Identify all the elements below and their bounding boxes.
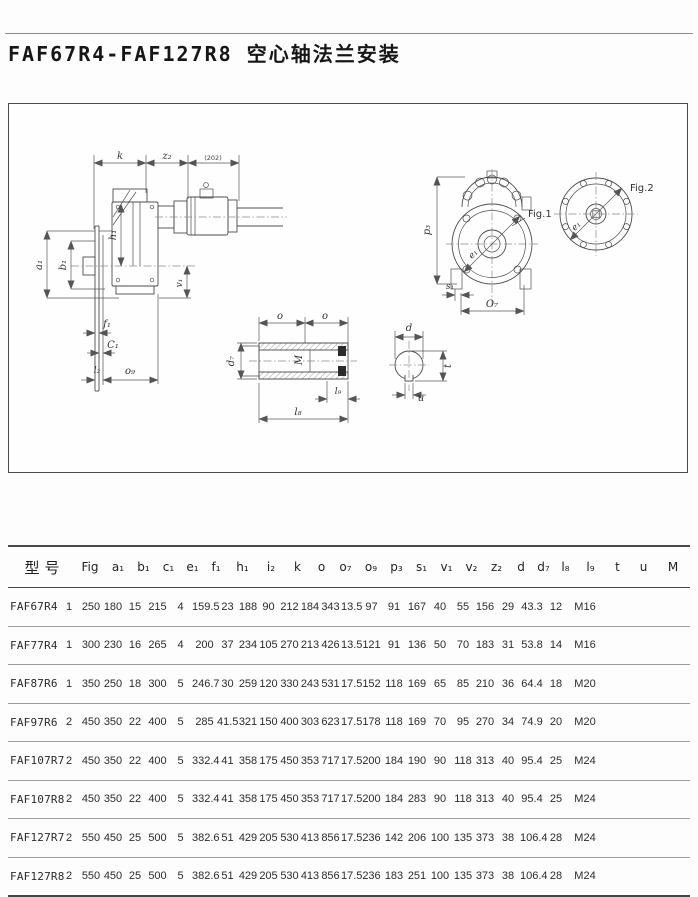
- column-header-fig: Fig: [75, 560, 105, 574]
- column-header-model: 型号: [8, 557, 75, 578]
- column-header-dim: c₁: [156, 560, 181, 574]
- value-cell: 13.5: [341, 639, 361, 651]
- dim-label-d: d: [406, 323, 412, 334]
- value-cell: M20: [568, 678, 602, 690]
- column-header-dim: v₂: [459, 560, 484, 574]
- value-cell: 152: [361, 678, 382, 690]
- value-cell: 500: [146, 832, 169, 844]
- value-cell: 142: [382, 832, 406, 844]
- value-cell: 95.4: [520, 755, 544, 767]
- value-cell: 40: [496, 755, 520, 767]
- value-cell: 429: [238, 870, 258, 882]
- model-cell: FAF87R6: [8, 677, 58, 690]
- value-cell: 180: [102, 601, 124, 613]
- technical-drawing: k z₂ (202): [9, 104, 689, 474]
- value-cell: M24: [568, 832, 602, 844]
- value-cell: 121: [361, 639, 382, 651]
- value-cell: 53.8: [520, 639, 544, 651]
- value-cell: 30: [217, 678, 238, 690]
- value-cell: 64.4: [520, 678, 544, 690]
- value-cell: 210: [474, 678, 496, 690]
- value-cell: 50: [428, 639, 452, 651]
- value-cell: 135: [452, 870, 474, 882]
- model-cell: FAF97R6: [8, 716, 58, 729]
- value-cell: 330: [279, 678, 300, 690]
- page-title: FAF67R4-FAF127R8 空心轴法兰安装: [8, 38, 401, 67]
- value-cell: 358: [238, 793, 258, 805]
- column-header-dim: f₁: [204, 560, 228, 574]
- value-cell: 215: [146, 601, 169, 613]
- dim-label-f1: f₁: [102, 319, 111, 330]
- table-row: FAF67R41250180152154159.5231889021218434…: [8, 588, 690, 627]
- value-cell: 400: [146, 793, 169, 805]
- value-cell: 118: [452, 755, 474, 767]
- value-cell: 18: [124, 678, 146, 690]
- value-cell: 37: [217, 639, 238, 651]
- value-cell: 85: [452, 678, 474, 690]
- thread-label-m: M: [294, 354, 305, 366]
- value-cell: 95.4: [520, 793, 544, 805]
- value-cell: 4: [169, 639, 192, 651]
- value-cell: 303: [300, 716, 320, 728]
- value-cell: 321: [238, 716, 258, 728]
- model-cell: FAF127R8: [8, 870, 58, 883]
- value-cell: 17.5: [341, 793, 361, 805]
- value-cell: 205: [258, 870, 279, 882]
- column-header-dim: l₈: [554, 560, 577, 574]
- value-cell: 17.5: [341, 832, 361, 844]
- value-cell: 74.9: [520, 716, 544, 728]
- header-rule: [5, 33, 693, 34]
- value-cell: 530: [279, 870, 300, 882]
- value-cell: 175: [258, 793, 279, 805]
- dim-label-o7: O₇: [486, 299, 498, 310]
- column-header-dim: e₁: [181, 560, 204, 574]
- value-cell: 500: [146, 870, 169, 882]
- value-cell: 250: [102, 678, 124, 690]
- dim-label-o-left: o: [277, 311, 283, 322]
- column-header-dim: o₉: [358, 560, 384, 574]
- value-cell: 17.5: [341, 755, 361, 767]
- value-cell: 5: [169, 832, 192, 844]
- value-cell: 450: [80, 716, 102, 728]
- value-cell: 236: [361, 832, 382, 844]
- value-cell: 156: [474, 601, 496, 613]
- dim-label-z2: z₂: [161, 151, 171, 162]
- model-cell: FAF107R7: [8, 754, 58, 767]
- value-cell: 5: [169, 755, 192, 767]
- value-cell: 353: [300, 755, 320, 767]
- dim-label-p3: p₃: [422, 225, 433, 235]
- value-cell: M24: [568, 755, 602, 767]
- value-cell: 17.5: [341, 870, 361, 882]
- value-cell: 31: [496, 639, 520, 651]
- value-cell: 400: [146, 716, 169, 728]
- dim-label-t: t: [443, 363, 454, 368]
- value-cell: 350: [102, 755, 124, 767]
- value-cell: 450: [102, 832, 124, 844]
- value-cell: 717: [320, 755, 341, 767]
- value-cell: 382.6: [192, 832, 217, 844]
- column-header-dim: p₃: [384, 560, 409, 574]
- dim-label-c1: C₁: [107, 340, 119, 351]
- front-view-fig1: e₁ p₃ s₁ O₇ Fig.1: [422, 169, 552, 315]
- value-cell: 265: [146, 639, 169, 651]
- value-cell: 450: [80, 755, 102, 767]
- value-cell: 413: [300, 870, 320, 882]
- value-cell: 22: [124, 755, 146, 767]
- value-cell: 200: [192, 639, 217, 651]
- value-cell: 106.4: [520, 832, 544, 844]
- value-cell: 183: [474, 639, 496, 651]
- value-cell: 12: [544, 601, 568, 613]
- value-cell: 188: [238, 601, 258, 613]
- dim-label-v1: v₁: [175, 279, 185, 288]
- value-cell: 51: [217, 832, 238, 844]
- value-cell: 70: [452, 639, 474, 651]
- value-cell: 22: [124, 716, 146, 728]
- value-cell: 350: [102, 716, 124, 728]
- catalog-page: { "page": { "title": "FAF67R4-FAF127R8 空…: [0, 0, 698, 893]
- column-header-dim: k: [285, 560, 310, 574]
- dim-label-b1: b₁: [58, 260, 69, 270]
- value-cell: 531: [320, 678, 341, 690]
- value-cell: 450: [102, 870, 124, 882]
- value-cell: 259: [238, 678, 258, 690]
- value-cell: 717: [320, 793, 341, 805]
- value-cell: 530: [279, 832, 300, 844]
- value-cell: 373: [474, 870, 496, 882]
- value-cell: 175: [258, 755, 279, 767]
- dim-label-l2: l₂: [94, 366, 101, 376]
- value-cell: 400: [146, 755, 169, 767]
- value-cell: 90: [258, 601, 279, 613]
- value-cell: 350: [102, 793, 124, 805]
- value-cell: 234: [238, 639, 258, 651]
- value-cell: 400: [279, 716, 300, 728]
- fig-cell: 2: [58, 716, 80, 728]
- value-cell: 246.7: [192, 678, 217, 690]
- value-cell: 38: [496, 870, 520, 882]
- table-row: FAF97R6245035022400528541.53211504003036…: [8, 704, 690, 743]
- fig-cell: 2: [58, 832, 80, 844]
- value-cell: 120: [258, 678, 279, 690]
- value-cell: 17.5: [341, 678, 361, 690]
- value-cell: 353: [300, 793, 320, 805]
- value-cell: 55: [452, 601, 474, 613]
- value-cell: 38: [496, 832, 520, 844]
- value-cell: 25: [124, 832, 146, 844]
- value-cell: 200: [361, 793, 382, 805]
- value-cell: 25: [544, 793, 568, 805]
- value-cell: 230: [102, 639, 124, 651]
- value-cell: 184: [300, 601, 320, 613]
- value-cell: 105: [258, 639, 279, 651]
- value-cell: 65: [428, 678, 452, 690]
- fig-cell: 2: [58, 755, 80, 767]
- table-row: FAF127R82550450255005382.651429205530413…: [8, 858, 690, 897]
- value-cell: 28: [544, 870, 568, 882]
- value-cell: 34: [496, 716, 520, 728]
- dim-label-o9: o₉: [125, 366, 135, 377]
- value-cell: 91: [382, 639, 406, 651]
- value-cell: 251: [406, 870, 428, 882]
- value-cell: 43.3: [520, 601, 544, 613]
- column-header-dim: s₁: [409, 560, 434, 574]
- fig-cell: 2: [58, 870, 80, 882]
- value-cell: 332.4: [192, 755, 217, 767]
- flange-view-fig2: e₁ Fig.2: [554, 172, 654, 256]
- model-cell: FAF67R4: [8, 600, 58, 613]
- dim-label-l9: l₉: [335, 387, 342, 397]
- value-cell: 184: [382, 755, 406, 767]
- value-cell: 16: [124, 639, 146, 651]
- value-cell: 426: [320, 639, 341, 651]
- fig2-label: Fig.2: [630, 183, 654, 194]
- value-cell: 136: [406, 639, 428, 651]
- value-cell: M24: [568, 870, 602, 882]
- value-cell: 70: [428, 716, 452, 728]
- value-cell: 183: [382, 870, 406, 882]
- column-header-dim: o₇: [333, 560, 358, 574]
- column-header-dim: d₇: [533, 560, 554, 574]
- value-cell: 135: [452, 832, 474, 844]
- value-cell: 15: [124, 601, 146, 613]
- value-cell: 413: [300, 832, 320, 844]
- value-cell: 150: [258, 716, 279, 728]
- value-cell: 350: [80, 678, 102, 690]
- value-cell: 41.5: [217, 716, 238, 728]
- value-cell: 343: [320, 601, 341, 613]
- value-cell: 270: [474, 716, 496, 728]
- column-header-dim: z₂: [484, 560, 509, 574]
- dim-label-o-right: o: [322, 311, 328, 322]
- dim-label-d7: d₇: [226, 356, 237, 366]
- value-cell: 623: [320, 716, 341, 728]
- value-cell: 29: [496, 601, 520, 613]
- table-row: FAF107R72450350224005332.441358175450353…: [8, 742, 690, 781]
- value-cell: 200: [361, 755, 382, 767]
- model-cell: FAF77R4: [8, 639, 58, 652]
- column-header-dim: t: [604, 560, 631, 574]
- column-header-dim: h₁: [228, 560, 257, 574]
- value-cell: 283: [406, 793, 428, 805]
- fig-cell: 1: [58, 678, 80, 690]
- value-cell: M24: [568, 793, 602, 805]
- value-cell: 91: [382, 601, 406, 613]
- column-header-dim: b₁: [131, 560, 156, 574]
- value-cell: 36: [496, 678, 520, 690]
- dim-label-e1-fig1: e₁: [467, 248, 480, 261]
- value-cell: 169: [406, 678, 428, 690]
- value-cell: 285: [192, 716, 217, 728]
- column-header-dim: M: [656, 560, 690, 574]
- value-cell: 429: [238, 832, 258, 844]
- value-cell: 5: [169, 716, 192, 728]
- value-cell: 184: [382, 793, 406, 805]
- column-header-dim: a₁: [105, 560, 131, 574]
- value-cell: 5: [169, 870, 192, 882]
- value-cell: 41: [217, 793, 238, 805]
- value-cell: 332.4: [192, 793, 217, 805]
- value-cell: 23: [217, 601, 238, 613]
- value-cell: 212: [279, 601, 300, 613]
- value-cell: 382.6: [192, 870, 217, 882]
- dim-label-l8: l₈: [294, 407, 301, 418]
- model-cell: FAF107R8: [8, 793, 58, 806]
- model-cell: FAF127R7: [8, 831, 58, 844]
- column-header-dim: u: [631, 560, 656, 574]
- value-cell: 25: [124, 870, 146, 882]
- value-cell: 97: [361, 601, 382, 613]
- value-cell: 169: [406, 716, 428, 728]
- value-cell: 118: [382, 716, 406, 728]
- value-cell: 159.5: [192, 601, 217, 613]
- value-cell: 17.5: [341, 716, 361, 728]
- value-cell: 450: [279, 755, 300, 767]
- value-cell: M16: [568, 601, 602, 613]
- fig1-label: Fig.1: [528, 209, 552, 220]
- dim-label-a1: a₁: [34, 260, 45, 270]
- value-cell: 18: [544, 678, 568, 690]
- side-view: k z₂ (202): [34, 151, 287, 391]
- value-cell: 51: [217, 870, 238, 882]
- value-cell: 313: [474, 755, 496, 767]
- value-cell: 14: [544, 639, 568, 651]
- value-cell: 205: [258, 832, 279, 844]
- hollow-shaft-view: o o d₇ M l₉ l₈: [226, 311, 360, 423]
- value-cell: 313: [474, 793, 496, 805]
- value-cell: 5: [169, 793, 192, 805]
- value-cell: 40: [496, 793, 520, 805]
- value-cell: 206: [406, 832, 428, 844]
- value-cell: 20: [544, 716, 568, 728]
- value-cell: 118: [382, 678, 406, 690]
- value-cell: 178: [361, 716, 382, 728]
- value-cell: 90: [428, 755, 452, 767]
- value-cell: M16: [568, 639, 602, 651]
- value-cell: 550: [80, 870, 102, 882]
- value-cell: 100: [428, 832, 452, 844]
- value-cell: 100: [428, 870, 452, 882]
- table-row: FAF107R82450350224005332.441358175450353…: [8, 781, 690, 820]
- table-row: FAF87R61350250183005246.7302591203302435…: [8, 665, 690, 704]
- value-cell: 358: [238, 755, 258, 767]
- value-cell: 250: [80, 601, 102, 613]
- value-cell: 450: [80, 793, 102, 805]
- value-cell: 41: [217, 755, 238, 767]
- shaft-cross-section: d t u: [389, 323, 454, 404]
- fig-cell: 1: [58, 601, 80, 613]
- table-row: FAF77R4130023016265420037234105270213426…: [8, 627, 690, 666]
- value-cell: 28: [544, 832, 568, 844]
- value-cell: 167: [406, 601, 428, 613]
- value-cell: 25: [544, 755, 568, 767]
- table-header-row: 型号Figa₁b₁c₁e₁f₁h₁i₂koo₇o₉p₃s₁v₁v₂z₂dd₇l₈…: [8, 547, 690, 588]
- value-cell: 450: [279, 793, 300, 805]
- value-cell: 300: [80, 639, 102, 651]
- value-cell: 190: [406, 755, 428, 767]
- value-cell: 213: [300, 639, 320, 651]
- value-cell: 236: [361, 870, 382, 882]
- value-cell: 856: [320, 832, 341, 844]
- dim-label-u: u: [418, 393, 424, 404]
- value-cell: 106.4: [520, 870, 544, 882]
- fig-cell: 1: [58, 639, 80, 651]
- dim-label-k: k: [117, 151, 123, 162]
- value-cell: 40: [428, 601, 452, 613]
- column-header-dim: v₁: [434, 560, 459, 574]
- value-cell: 90: [428, 793, 452, 805]
- value-cell: 118: [452, 793, 474, 805]
- value-cell: 300: [146, 678, 169, 690]
- column-header-dim: i₂: [257, 560, 285, 574]
- table-row: FAF127R72550450255005382.651429205530413…: [8, 819, 690, 858]
- value-cell: 13.5: [341, 601, 361, 613]
- dimension-table: 型号Figa₁b₁c₁e₁f₁h₁i₂koo₇o₉p₃s₁v₁v₂z₂dd₇l₈…: [8, 545, 690, 897]
- technical-drawing-frame: k z₂ (202): [8, 103, 688, 473]
- value-cell: 4: [169, 601, 192, 613]
- motor-dim-note: (202): [204, 154, 221, 162]
- value-cell: 270: [279, 639, 300, 651]
- value-cell: 5: [169, 678, 192, 690]
- value-cell: 373: [474, 832, 496, 844]
- value-cell: 95: [452, 716, 474, 728]
- dim-label-s1: s₁: [446, 282, 454, 292]
- column-header-dim: d: [509, 560, 533, 574]
- column-header-dim: o: [310, 560, 333, 574]
- value-cell: 243: [300, 678, 320, 690]
- value-cell: 550: [80, 832, 102, 844]
- fig-cell: 2: [58, 793, 80, 805]
- column-header-dim: l₉: [577, 560, 604, 574]
- dim-label-h1: h₁: [108, 230, 119, 240]
- value-cell: M20: [568, 716, 602, 728]
- value-cell: 22: [124, 793, 146, 805]
- value-cell: 856: [320, 870, 341, 882]
